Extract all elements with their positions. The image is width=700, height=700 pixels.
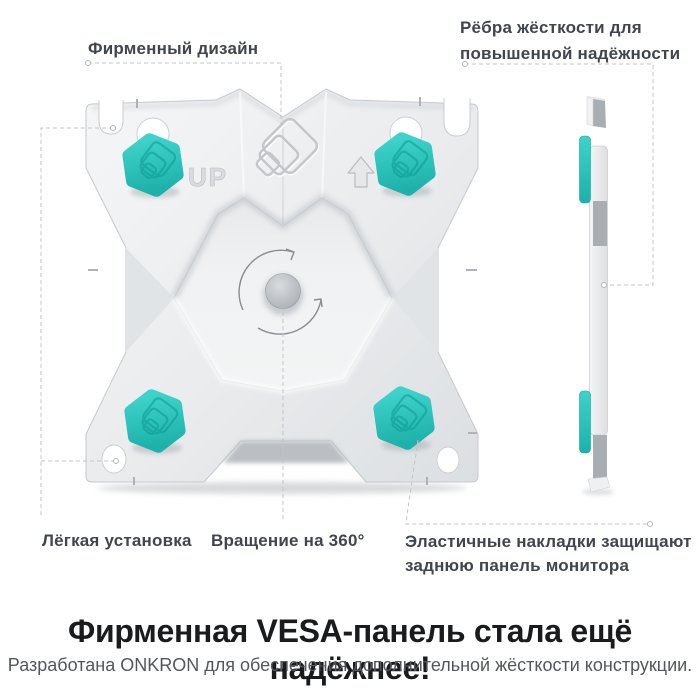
elastic-pad-top-right [379, 135, 434, 197]
callout-label-elastic-pads: Эластичные накладки защищают заднюю пане… [405, 530, 692, 578]
callout-label-elastic-pads-line1: Эластичные накладки защищают [405, 530, 692, 554]
elastic-pad-side-bottom [580, 391, 591, 453]
elastic-pad-bottom-right [378, 389, 433, 451]
callout-label-brand-design: Фирменный дизайн [88, 36, 258, 62]
callout-label-ribs: Рёбра жёсткости для повышенной надёжност… [460, 15, 680, 67]
up-marking: UP [188, 162, 228, 192]
callout-label-elastic-pads-line2: заднюю панель монитора [405, 554, 692, 578]
callout-label-ribs-line2: повышенной надёжности [460, 41, 680, 67]
footer-subheading: Разработана ONKRON для обеспечения допол… [0, 655, 700, 676]
figure-artwork: UP [0, 0, 700, 700]
leader-ribs [465, 64, 653, 285]
callout-label-rotation: Вращение на 360° [211, 528, 365, 554]
callout-label-ribs-line1: Рёбра жёсткости для [460, 15, 680, 41]
callout-label-easy-install: Лёгкая установка [42, 528, 192, 554]
elastic-pad-bottom-left [129, 392, 184, 454]
elastic-pad-side-top [580, 136, 591, 203]
plate-side-view [580, 97, 615, 495]
elastic-pad-top-left [127, 136, 182, 198]
vesa-plate-annotated-figure: UP [0, 0, 700, 700]
plate-front-view: UP [86, 89, 478, 494]
